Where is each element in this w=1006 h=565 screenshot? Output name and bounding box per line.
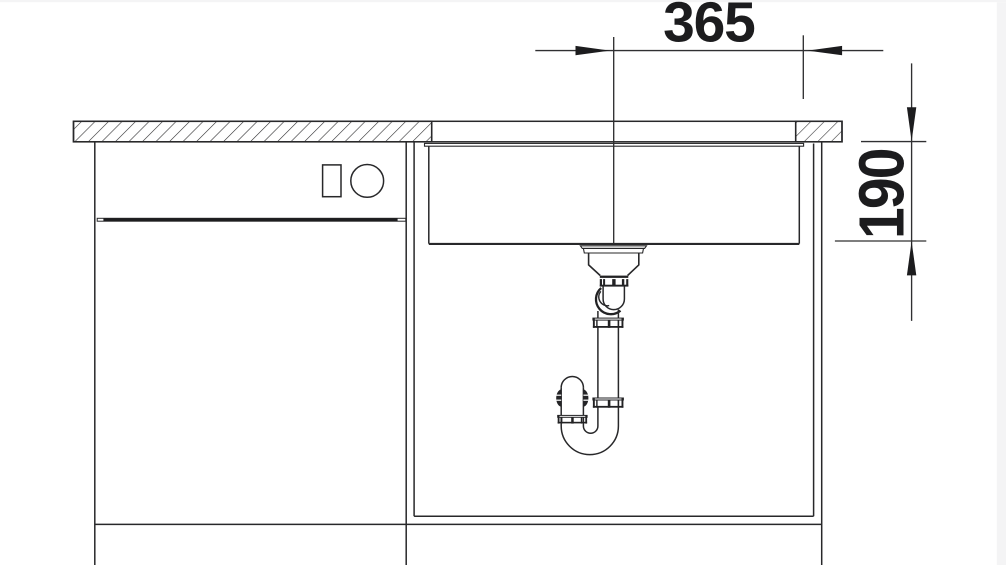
svg-text:365: 365 [663,0,755,55]
svg-text:190: 190 [846,149,918,239]
